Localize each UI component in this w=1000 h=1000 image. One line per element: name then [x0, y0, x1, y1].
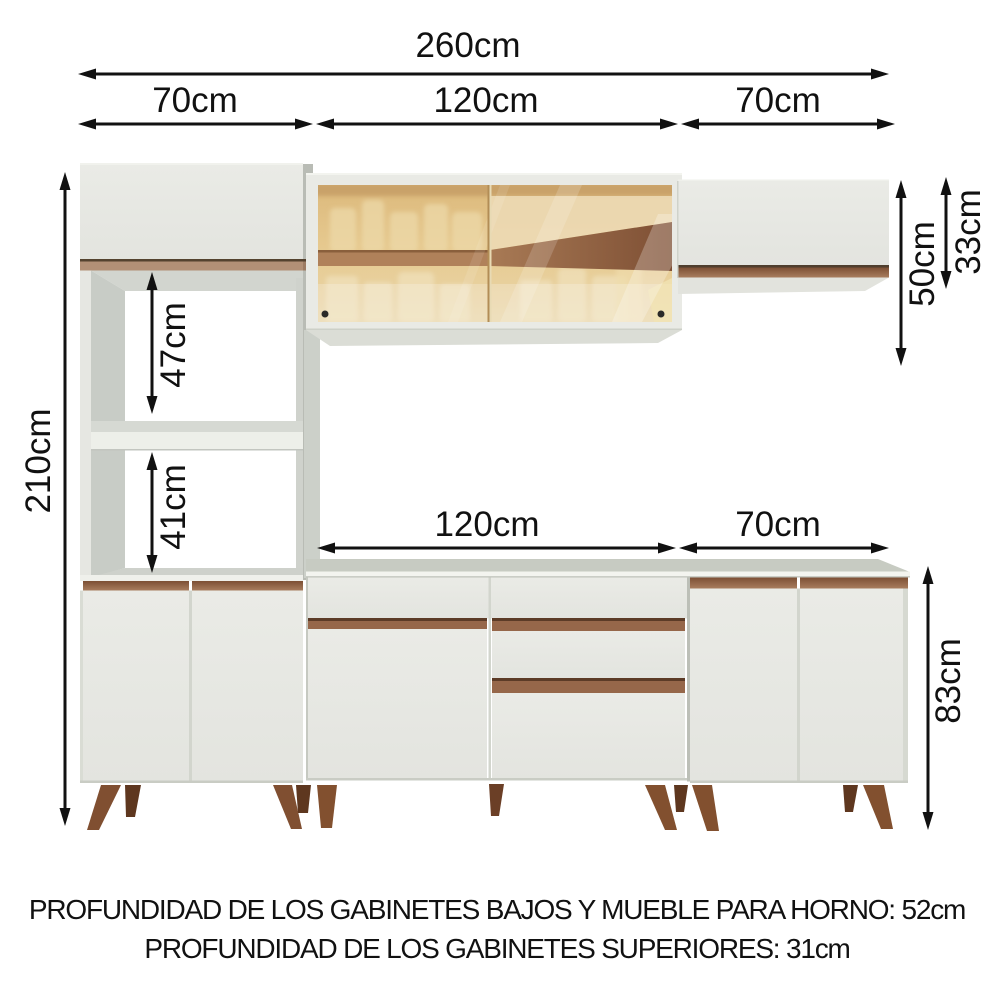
svg-text:70cm: 70cm: [152, 81, 238, 120]
svg-text:210cm: 210cm: [19, 408, 58, 513]
svg-text:70cm: 70cm: [735, 81, 821, 120]
svg-text:120cm: 120cm: [433, 81, 538, 120]
svg-text:50cm: 50cm: [903, 221, 942, 307]
svg-text:41cm: 41cm: [154, 464, 193, 550]
svg-text:47cm: 47cm: [154, 302, 193, 388]
svg-text:33cm: 33cm: [949, 189, 988, 275]
svg-text:260cm: 260cm: [415, 26, 520, 65]
svg-text:70cm: 70cm: [735, 505, 821, 544]
svg-text:PROFUNDIDAD DE LOS GABINETES B: PROFUNDIDAD DE LOS GABINETES BAJOS Y MUE…: [29, 894, 965, 925]
svg-text:83cm: 83cm: [929, 638, 968, 724]
svg-text:PROFUNDIDAD DE LOS GABINETES S: PROFUNDIDAD DE LOS GABINETES SUPERIORES:…: [144, 933, 849, 964]
svg-text:120cm: 120cm: [434, 505, 539, 544]
